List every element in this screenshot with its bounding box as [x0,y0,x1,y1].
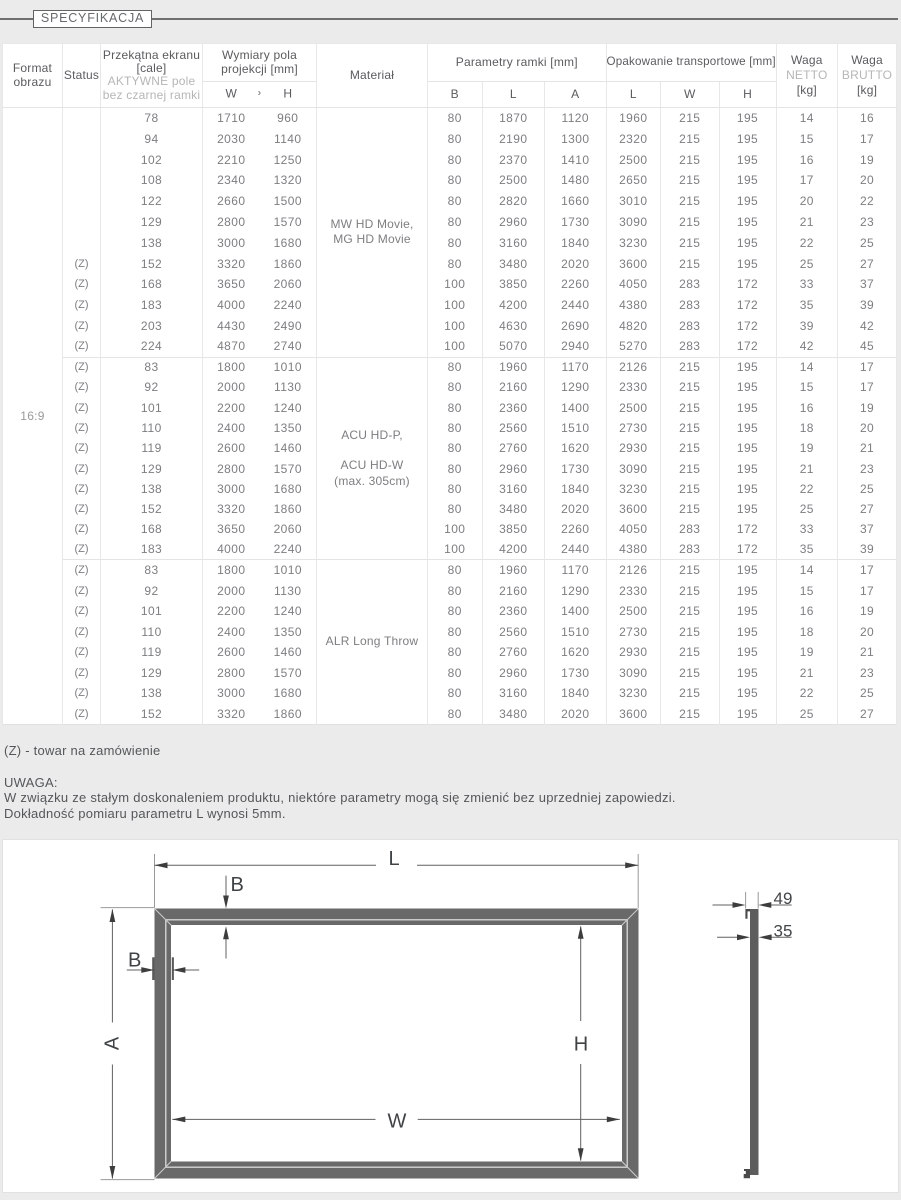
svg-text:B: B [231,874,244,896]
svg-text:H: H [574,1033,588,1055]
svg-text:W: W [388,1110,407,1132]
svg-text:35: 35 [774,921,793,940]
svg-text:L: L [388,848,399,870]
svg-text:B: B [128,950,141,972]
svg-text:A: A [101,1036,123,1050]
svg-text:49: 49 [774,889,793,908]
